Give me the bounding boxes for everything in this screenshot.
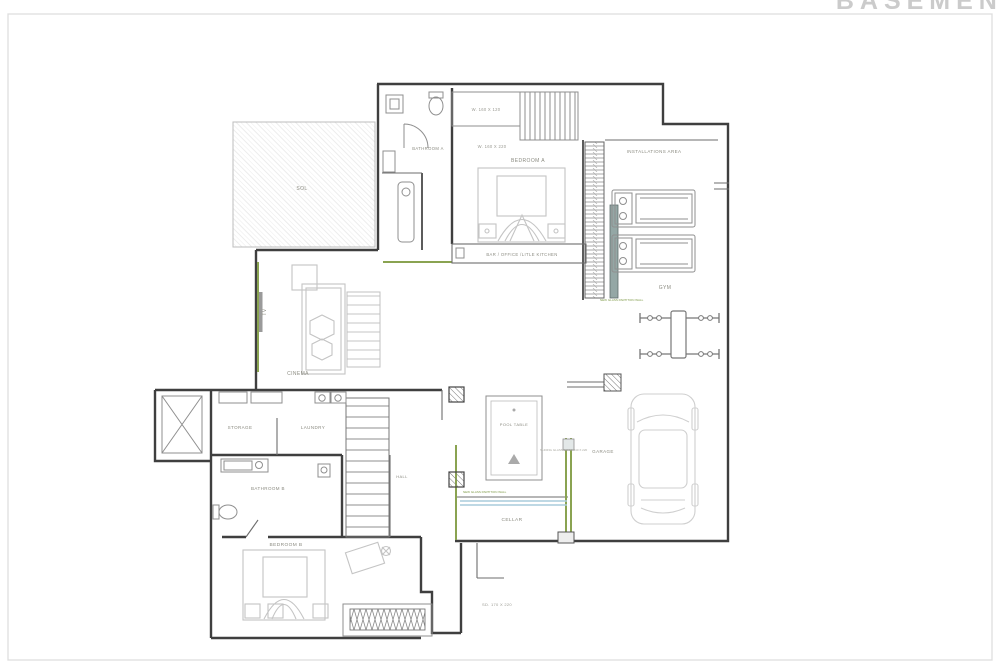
room-label-tv: TV	[262, 308, 268, 315]
cinema: TV CINEMA	[259, 265, 380, 377]
bar-office: BAR / OFFICE /LITLE KITCHEN	[452, 244, 586, 263]
radiator-b	[343, 604, 432, 636]
car	[628, 394, 698, 524]
room-label-cinema: CINEMA	[287, 371, 309, 377]
note-glass-wall-cellar: NEW GLASS PARTITION WALL	[463, 490, 507, 494]
dim-wardrobe-a1: W. 160 X 120	[472, 107, 501, 112]
bedroom-a: BEDROOM A	[478, 158, 565, 242]
room-label-bedroom-b: BEDROOM B	[270, 542, 303, 548]
room-label-bar-office: BAR / OFFICE /LITLE KITCHEN	[486, 252, 557, 257]
dim-sliding-door: SD. 170 X 220	[482, 602, 512, 607]
structural-columns	[449, 374, 621, 543]
bed-a	[478, 168, 565, 242]
room-label-gym: GYM	[659, 285, 672, 291]
room-label-pool-table: POOL TABLE	[500, 422, 528, 427]
floor-plan-canvas: BASEMENT SOL	[0, 0, 1000, 666]
bedroom-b: BEDROOM B	[243, 542, 432, 636]
weight-bench	[640, 311, 719, 359]
note-glass-wall-gym: NEW GLASS PARTITION WALL	[600, 298, 644, 302]
treadmill-2	[612, 235, 695, 272]
room-label-garage: GARAGE	[592, 449, 614, 454]
room-label-bedroom-a: BEDROOM A	[511, 158, 545, 164]
bathroom-b: BATHROOM B	[213, 459, 330, 519]
desk	[345, 542, 384, 573]
installations-shaft	[585, 142, 604, 298]
storage-laundry: STORAGE LAUNDRY	[219, 392, 346, 430]
room-label-installations: INSTALLATIONS AREA	[627, 149, 682, 154]
room-label-storage: STORAGE	[228, 425, 253, 430]
wardrobe-a: W. 160 X 120 W. 160 X 220	[452, 92, 578, 149]
pool-table: POOL TABLE	[486, 396, 542, 480]
room-label-laundry: LAUNDRY	[301, 425, 325, 430]
room-sol: SOL	[233, 122, 375, 247]
note-sliding-glass-door: SLIDING GLASS DOOR 240 X 220	[540, 448, 588, 452]
bathroom-a: BATHROOM A	[383, 92, 444, 242]
room-label-hall: HALL	[396, 474, 408, 479]
elevator	[162, 396, 202, 453]
staircase	[346, 398, 389, 537]
room-label-bathroom-a: BATHROOM A	[412, 146, 444, 151]
room-label-cellar: CELLAR	[501, 517, 522, 523]
gym-partition-bar	[610, 205, 618, 298]
treadmill-1	[612, 190, 695, 227]
room-label-sol: SOL	[296, 186, 307, 192]
dim-wardrobe-a2: W. 160 X 220	[478, 144, 507, 149]
room-label-bathroom-b: BATHROOM B	[251, 486, 285, 491]
cellar: NEW GLASS PARTITION WALL CELLAR	[460, 490, 567, 523]
page-title: BASEMENT	[836, 0, 1000, 15]
bed-b	[243, 550, 328, 620]
